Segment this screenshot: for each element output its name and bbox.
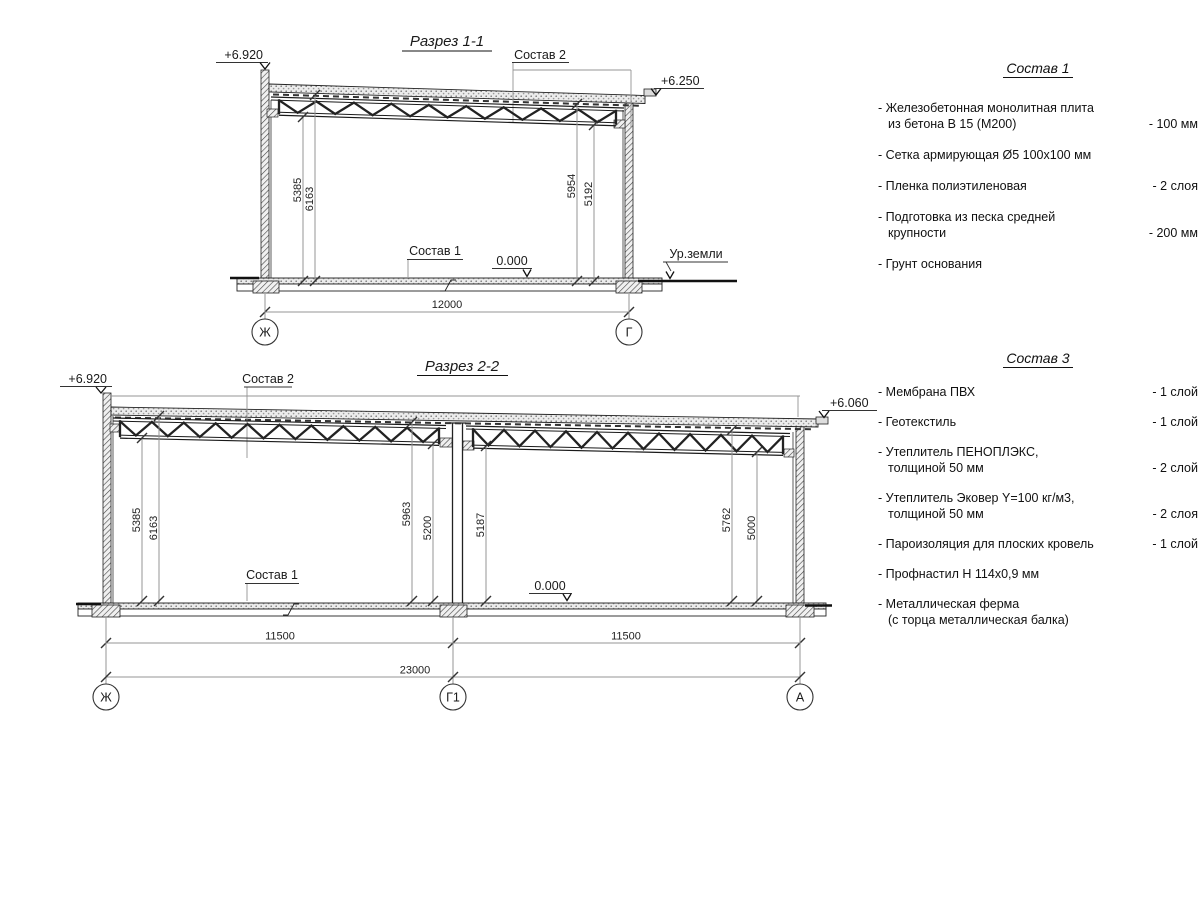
footing xyxy=(440,605,467,617)
panel-title: Состав 1 xyxy=(878,60,1198,78)
dim-text: 5200 xyxy=(422,516,434,540)
panel-title-text: Состав 1 xyxy=(1003,60,1072,78)
footing xyxy=(786,605,814,617)
zero-level-label: 0.000 xyxy=(534,579,565,593)
span-dim-text: 11500 xyxy=(611,631,641,643)
dim-text: 5385 xyxy=(131,508,143,532)
roof-edge-block xyxy=(816,417,828,424)
elevation-arrow-icon xyxy=(260,63,270,70)
dim-text: 5192 xyxy=(583,182,595,206)
dim-text: 5762 xyxy=(721,508,733,532)
panel-title: Состав 3 xyxy=(878,350,1198,368)
dim-text: 5385 xyxy=(292,178,304,202)
section2-title: Разрез 2-2 xyxy=(425,358,500,375)
axis-label: Ж xyxy=(259,326,271,340)
list-item: - Профнастил Н 114х0,9 мм xyxy=(878,566,1198,582)
elevation-arrow-icon xyxy=(819,411,829,418)
section-2-2-structure xyxy=(76,387,832,617)
section1-title: Разрез 1-1 xyxy=(410,33,484,50)
list-item: - Утеплитель Эковер Y=100 кг/м3, толщино… xyxy=(878,490,1198,522)
panel-title-text: Состав 3 xyxy=(1003,350,1072,368)
level-arrow-icon xyxy=(563,594,571,601)
elevation-mark-left: +6.920 xyxy=(224,48,263,62)
elevation-arrow-icon xyxy=(96,387,106,393)
span-dim-text: 23000 xyxy=(400,665,431,677)
span-dim-text: 12000 xyxy=(432,299,463,311)
span-dim-text: 11500 xyxy=(265,631,295,643)
list-item: - Сетка армирующая Ø5 100х100 мм xyxy=(878,147,1198,163)
footing xyxy=(616,281,642,293)
wall-right xyxy=(796,426,804,603)
ground-level-label: Ур.земли xyxy=(669,247,722,261)
axis-label: А xyxy=(796,691,805,705)
wall-left xyxy=(261,70,269,278)
column xyxy=(453,423,462,603)
footing xyxy=(253,281,279,293)
dim-text: 6163 xyxy=(304,187,316,211)
elevation-mark-right: +6.250 xyxy=(661,74,700,88)
list-item: - Железобетонная монолитная плита из бет… xyxy=(878,100,1198,132)
elevation-mark-right: +6.060 xyxy=(830,396,869,410)
dim-text: 6163 xyxy=(148,516,160,540)
elevation-mark-left: +6.920 xyxy=(68,372,107,386)
list-item: - Мембрана ПВХ- 1 слой xyxy=(878,384,1198,400)
axis-label: Г xyxy=(626,326,633,340)
floor-composition-label: Состав 1 xyxy=(409,244,461,258)
list-item: - Утеплитель ПЕНОПЛЭКС, толщиной 50 мм- … xyxy=(878,444,1198,476)
wall-right xyxy=(625,103,633,278)
footing xyxy=(92,605,120,617)
panel-sostav-1: Состав 1 - Железобетонная монолитная пли… xyxy=(878,60,1198,287)
drawing-sheet: Разрез 1-1 +6.920 +6.250 Состав 2 Состав… xyxy=(0,0,1200,900)
roof-composition-label: Состав 2 xyxy=(514,48,566,62)
list-item: - Пленка полиэтиленовая- 2 слоя xyxy=(878,178,1198,194)
level-arrow-icon xyxy=(666,272,674,279)
zero-level-label: 0.000 xyxy=(496,254,527,268)
axis-label: Ж xyxy=(100,691,112,705)
list-item: - Грунт основания xyxy=(878,256,1198,272)
axis-label: Г1 xyxy=(446,691,460,705)
list-item: - Подготовка из песка средней крупности-… xyxy=(878,209,1198,241)
dim-text: 5954 xyxy=(566,174,578,198)
level-arrow-icon xyxy=(523,270,531,277)
panel-sostav-3: Состав 3 - Мембрана ПВХ- 1 слой - Геотек… xyxy=(878,350,1198,642)
dim-text: 5187 xyxy=(475,513,487,537)
roof-composition-label: Состав 2 xyxy=(242,372,294,386)
dim-text: 5000 xyxy=(746,516,758,540)
list-item: - Пароизоляция для плоских кровель- 1 сл… xyxy=(878,536,1198,552)
list-item: - Металлическая ферма (с торца металличе… xyxy=(878,596,1198,628)
section-1-1-annotations: Разрез 1-1 +6.920 +6.250 Состав 2 Состав… xyxy=(216,33,728,345)
floor-composition-label: Состав 1 xyxy=(246,568,298,582)
dim-text: 5963 xyxy=(401,502,413,526)
list-item: - Геотекстиль- 1 слой xyxy=(878,414,1198,430)
